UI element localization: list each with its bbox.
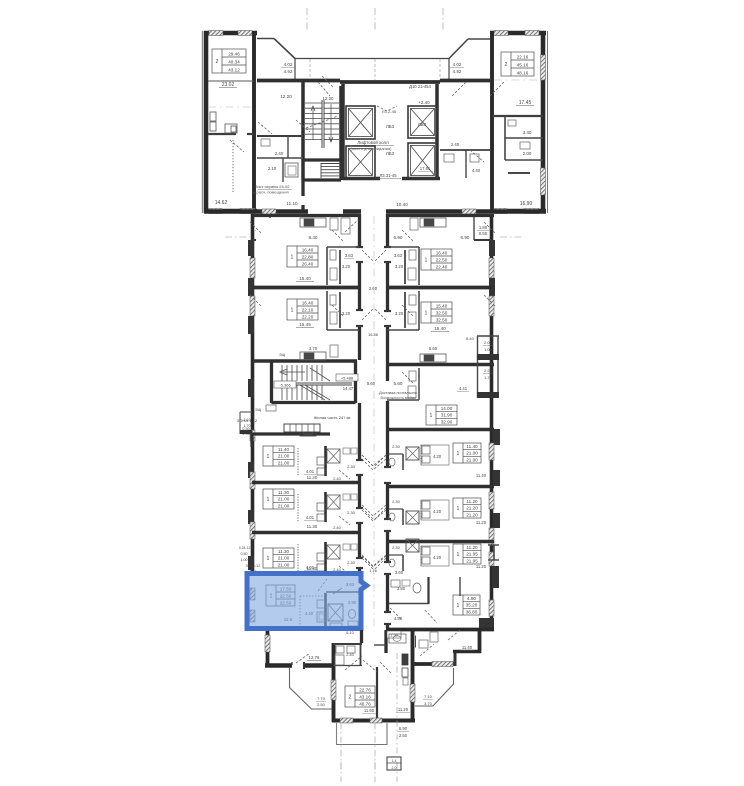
svg-text:3.40: 3.40 <box>523 130 532 135</box>
svg-text:ЭЩ: ЭЩ <box>255 408 262 412</box>
svg-text:6.90: 6.90 <box>399 726 408 731</box>
svg-text:14.47: 14.47 <box>343 386 354 391</box>
svg-text:3.20: 3.20 <box>395 264 404 269</box>
svg-text:32.50: 32.50 <box>436 317 448 322</box>
svg-text:1: 1 <box>267 556 270 562</box>
svg-text:Лифтовой холл: Лифтовой холл <box>357 140 389 145</box>
svg-text:2.50: 2.50 <box>317 702 326 707</box>
svg-text:21.00: 21.00 <box>466 457 478 462</box>
svg-text:6.90: 6.90 <box>461 235 470 240</box>
svg-text:2.30: 2.30 <box>392 444 401 449</box>
svg-text:ЛЗ.31-45: ЛЗ.31-45 <box>379 173 397 178</box>
svg-text:3.63: 3.63 <box>345 253 354 258</box>
svg-text:17.45: 17.45 <box>519 100 532 106</box>
svg-text:1: 1 <box>430 413 433 419</box>
svg-text:в расч. помещения: в расч. помещения <box>253 190 288 195</box>
svg-text:3.63: 3.63 <box>394 253 403 258</box>
svg-text:10.40: 10.40 <box>396 202 408 207</box>
svg-text:1: 1 <box>425 311 428 317</box>
svg-text:40.34: 40.34 <box>228 59 240 64</box>
svg-text:6.90: 6.90 <box>394 235 403 240</box>
svg-text:2.10: 2.10 <box>268 166 277 171</box>
svg-text:1: 1 <box>267 497 270 503</box>
svg-text:4.01: 4.01 <box>306 515 315 520</box>
svg-text:2.0: 2.0 <box>392 766 397 770</box>
svg-text:31.90: 31.90 <box>441 413 453 418</box>
svg-text:5.60: 5.60 <box>367 381 376 386</box>
svg-text:2: 2 <box>216 59 219 65</box>
svg-text:3.80: 3.80 <box>397 586 406 591</box>
svg-text:ЛБ3: ЛБ3 <box>386 151 395 156</box>
svg-text:21.00: 21.00 <box>278 556 290 561</box>
svg-text:21.00: 21.00 <box>278 460 290 465</box>
svg-text:1: 1 <box>457 552 460 558</box>
svg-text:11.40: 11.40 <box>476 473 487 478</box>
svg-text:11.30: 11.30 <box>307 524 318 529</box>
svg-text:11.20: 11.20 <box>398 707 409 712</box>
svg-text:11.30: 11.30 <box>278 549 290 554</box>
svg-text:3.20: 3.20 <box>395 311 404 316</box>
svg-text:2.40: 2.40 <box>333 525 342 530</box>
svg-text:26.40: 26.40 <box>302 261 314 266</box>
svg-text:4.92: 4.92 <box>284 69 293 74</box>
svg-text:2.40: 2.40 <box>451 142 460 147</box>
svg-text:2.30: 2.30 <box>392 499 401 504</box>
svg-text:3.70: 3.70 <box>309 346 318 351</box>
svg-text:2.40: 2.40 <box>275 151 284 156</box>
svg-text:22.76: 22.76 <box>359 687 371 692</box>
svg-text:ЛБ3: ЛБ3 <box>386 124 395 129</box>
svg-text:16.40: 16.40 <box>302 300 314 305</box>
svg-text:1.00: 1.00 <box>484 347 493 352</box>
svg-text:11.40: 11.40 <box>462 645 473 650</box>
svg-text:21.00: 21.00 <box>278 562 290 567</box>
svg-text:Доставка почтальона: Доставка почтальона <box>379 391 418 395</box>
svg-text:3.20: 3.20 <box>342 264 351 269</box>
svg-text:22.80: 22.80 <box>302 254 314 259</box>
svg-text:12.20: 12.20 <box>280 94 292 99</box>
svg-text:48.76: 48.76 <box>359 701 371 706</box>
svg-text:22.10: 22.10 <box>302 307 314 312</box>
svg-text:12.20: 12.20 <box>323 96 335 101</box>
svg-text:+5.488: +5.488 <box>341 376 354 381</box>
svg-text:21.00: 21.00 <box>278 503 290 508</box>
svg-text:4.02: 4.02 <box>453 62 462 67</box>
svg-text:22.40: 22.40 <box>436 264 448 269</box>
svg-text:1: 1 <box>267 454 270 460</box>
svg-text:15.40: 15.40 <box>434 326 446 331</box>
svg-text:1.16: 1.16 <box>369 568 378 573</box>
svg-text:4.20: 4.20 <box>433 454 442 459</box>
svg-text:ЛБ3: ЛБ3 <box>418 122 427 127</box>
svg-text:8.40: 8.40 <box>466 336 475 341</box>
svg-text:7.70: 7.70 <box>317 696 326 701</box>
svg-text:2.20: 2.20 <box>484 368 493 373</box>
svg-text:Д10 21-454: Д10 21-454 <box>409 84 431 89</box>
svg-text:2.10: 2.10 <box>244 418 251 422</box>
svg-text:1.4: 1.4 <box>392 759 397 763</box>
svg-text:11.20: 11.20 <box>307 475 318 480</box>
svg-text:4.40: 4.40 <box>472 168 481 173</box>
svg-text:16.86: 16.86 <box>368 332 379 337</box>
svg-text:15.40: 15.40 <box>299 276 311 281</box>
svg-text:16.40: 16.40 <box>436 250 448 255</box>
svg-text:4.20: 4.20 <box>433 555 442 560</box>
svg-text:ЗЮ 2-12: ЗЮ 2-12 <box>246 564 261 568</box>
svg-text:1.70: 1.70 <box>244 424 251 428</box>
svg-text:2: 2 <box>505 62 508 68</box>
svg-text:2.30: 2.30 <box>347 464 356 469</box>
svg-text:17.61: 17.61 <box>420 166 431 171</box>
svg-text:22.20: 22.20 <box>302 314 314 319</box>
svg-text:2: 2 <box>349 695 352 701</box>
svg-text:35.20: 35.20 <box>466 603 478 608</box>
svg-text:11.20: 11.20 <box>466 545 478 550</box>
svg-text:32.90: 32.90 <box>441 419 453 424</box>
svg-text:11.20: 11.20 <box>466 499 478 504</box>
svg-text:-5.366: -5.366 <box>279 383 291 388</box>
svg-text:4.41: 4.41 <box>459 386 468 391</box>
svg-text:16.40: 16.40 <box>302 247 314 252</box>
svg-text:48.16: 48.16 <box>517 70 529 75</box>
svg-text:0.24-12.4: 0.24-12.4 <box>239 546 253 550</box>
svg-text:0.50: 0.50 <box>479 231 488 236</box>
svg-text:5.60: 5.60 <box>394 381 403 386</box>
svg-text:21.00: 21.00 <box>466 451 478 456</box>
svg-text:6.10: 6.10 <box>346 631 353 635</box>
svg-text:32.50: 32.50 <box>436 310 448 315</box>
svg-text:2.50: 2.50 <box>399 733 408 738</box>
svg-text:1: 1 <box>425 258 428 264</box>
svg-text:15.40: 15.40 <box>436 303 448 308</box>
svg-text:11.30: 11.30 <box>307 566 318 571</box>
svg-text:1: 1 <box>291 255 294 261</box>
svg-text:29.46: 29.46 <box>228 51 240 56</box>
svg-text:36.80: 36.80 <box>466 609 478 614</box>
svg-text:43.12: 43.12 <box>228 67 240 72</box>
svg-text:14.62: 14.62 <box>215 200 228 206</box>
svg-text:1: 1 <box>457 603 460 609</box>
svg-text:2.60: 2.60 <box>369 286 378 291</box>
svg-text:1.00: 1.00 <box>241 558 248 562</box>
svg-text:2.40: 2.40 <box>346 652 355 657</box>
svg-text:5.60: 5.60 <box>429 346 438 351</box>
svg-text:7.10: 7.10 <box>424 694 433 699</box>
svg-text:2.00: 2.00 <box>523 151 532 156</box>
svg-text:2.30: 2.30 <box>392 545 401 550</box>
svg-text:4.80: 4.80 <box>467 596 476 601</box>
svg-text:Возможность мойки: Возможность мойки <box>380 396 415 400</box>
svg-text:8.40: 8.40 <box>309 235 318 240</box>
svg-text:4.02: 4.02 <box>284 62 293 67</box>
svg-text:(место для ожидания): (место для ожидания) <box>351 146 393 151</box>
svg-text:11.40: 11.40 <box>466 444 478 449</box>
svg-text:+2.40: +2.40 <box>418 100 430 105</box>
svg-text:21.20: 21.20 <box>466 506 478 511</box>
svg-text:16.90: 16.90 <box>520 201 533 207</box>
svg-text:11.10: 11.10 <box>286 201 298 206</box>
svg-text:2.30: 2.30 <box>347 560 356 565</box>
svg-text:Жилая часть 24? кв: Жилая часть 24? кв <box>314 415 351 420</box>
svg-text:22.50: 22.50 <box>436 257 448 262</box>
svg-text:1: 1 <box>457 506 460 512</box>
svg-text:14.00: 14.00 <box>441 406 453 411</box>
svg-text:2.40: 2.40 <box>333 476 342 481</box>
svg-text:3.20: 3.20 <box>342 311 351 316</box>
svg-text:ЭЩ: ЭЩ <box>279 353 286 357</box>
svg-text:21.00: 21.00 <box>278 454 290 459</box>
svg-text:11.20: 11.20 <box>476 564 487 569</box>
svg-text:45.16: 45.16 <box>517 62 529 67</box>
svg-text:21.20: 21.20 <box>466 512 478 517</box>
svg-text:23.02: 23.02 <box>222 82 235 88</box>
svg-text:11.60: 11.60 <box>364 708 375 713</box>
svg-text:4.20: 4.20 <box>433 509 442 514</box>
svg-text:0.50: 0.50 <box>241 552 248 556</box>
svg-text:Пост охраны 24-02: Пост охраны 24-02 <box>254 184 290 189</box>
svg-text:3.60: 3.60 <box>395 570 404 575</box>
svg-text:11.20: 11.20 <box>476 520 487 525</box>
svg-text:1: 1 <box>291 308 294 314</box>
svg-text:4.01: 4.01 <box>306 469 315 474</box>
svg-text:1.80: 1.80 <box>479 225 488 230</box>
svg-text:4.92: 4.92 <box>453 69 462 74</box>
svg-text:2.30: 2.30 <box>347 510 356 515</box>
svg-text:11.40: 11.40 <box>278 447 290 452</box>
svg-text:11.30: 11.30 <box>278 490 290 495</box>
svg-text:12.76: 12.76 <box>309 655 321 660</box>
svg-text:21.00: 21.00 <box>278 497 290 502</box>
svg-text:ЛЗ.2-45: ЛЗ.2-45 <box>382 109 397 114</box>
svg-text:21.95: 21.95 <box>466 552 478 557</box>
svg-text:15.45: 15.45 <box>299 322 311 327</box>
svg-text:22.16: 22.16 <box>517 54 529 59</box>
svg-text:3.70: 3.70 <box>424 701 433 706</box>
svg-text:4.50: 4.50 <box>394 616 403 621</box>
svg-text:21.95: 21.95 <box>466 558 478 563</box>
svg-text:1: 1 <box>457 451 460 457</box>
svg-text:1.70: 1.70 <box>484 375 493 380</box>
svg-text:2.00: 2.00 <box>484 340 493 345</box>
svg-text:43.16: 43.16 <box>359 694 371 699</box>
